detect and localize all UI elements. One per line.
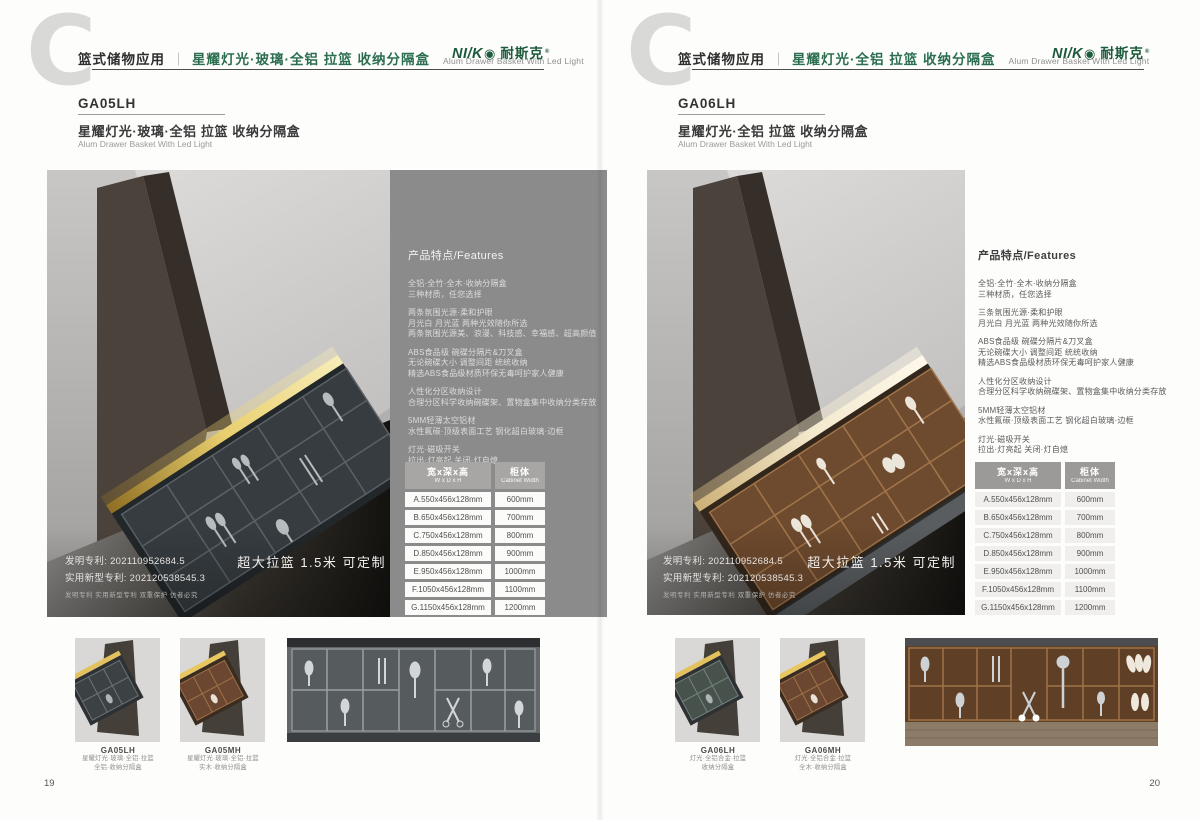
- spec-cabinet: 800mm: [1065, 528, 1115, 543]
- thumb-line1: 灯光·全铝合金·拉篮: [768, 755, 878, 764]
- feature-line: 人性化分区收纳设计: [408, 387, 600, 398]
- thumbnail-caption-1: GA05LH 星耀灯光·玻璃·全铝·拉篮 全铝·收纳分隔盒: [63, 746, 173, 772]
- feature-line: 5MM轻薄太空铝材: [408, 416, 600, 427]
- spec-cabinet: 1100mm: [1065, 582, 1115, 597]
- spread-spine: [596, 0, 604, 820]
- spec-cabinet: 600mm: [495, 492, 545, 507]
- features-heading: 产品特点/Features: [408, 247, 600, 263]
- patent-line-3: 发明专利 实用新型专利 双重保护 仿者必究: [663, 589, 803, 599]
- brand-logo-cn: 耐斯克: [1100, 42, 1144, 62]
- header-separator: ｜: [772, 49, 785, 68]
- thumbnail-photo-2: [780, 638, 865, 742]
- spec-col-size-en: W x D x H: [405, 477, 491, 485]
- spec-cabinet: 700mm: [495, 510, 545, 525]
- feature-line: 灯光·磁吸开关: [978, 435, 1173, 446]
- brand-logo-latin: NI/K: [452, 46, 483, 62]
- spec-col-cabinet: 柜体 Cabinet Width: [495, 462, 545, 489]
- spec-cabinet: 1200mm: [495, 600, 545, 615]
- spec-table: 宽x深x高 W x D x H 柜体 Cabinet Width A.550x4…: [405, 462, 545, 615]
- features-heading: 产品特点/Features: [978, 247, 1173, 263]
- feature-group: 两条氛围光源·柔和护眼 月光白 月光蓝 两种光效随你所选 两条氛围光源美、浪漫、…: [408, 308, 600, 340]
- patent-line-2: 实用新型专利: 202120538545.3: [663, 570, 803, 587]
- brand-logo: NI/K◉耐斯克®: [1052, 42, 1149, 62]
- spec-col-cabinet-en: Cabinet Width: [495, 477, 545, 485]
- feature-line: 两条氛围光源美、浪漫、科技感、幸福感、超高颜值: [408, 329, 600, 340]
- spec-size: B.650x456x128mm: [405, 510, 491, 525]
- spec-size: B.650x456x128mm: [975, 510, 1061, 525]
- brand-logo: NI/K◉耐斯克®: [452, 42, 549, 62]
- feature-group: 灯光·磁吸开关 拉出·灯亮起 关闭·灯自熄: [978, 435, 1173, 456]
- product-name-en: Alum Drawer Basket With Led Light: [678, 139, 812, 149]
- registered-mark: ®: [545, 49, 549, 55]
- feature-line: 三种材质，任您选择: [978, 290, 1173, 301]
- thumb-line1: 星耀灯光·玻璃·全铝·拉篮: [63, 755, 173, 764]
- product-code-underline: [78, 114, 225, 115]
- spec-col-cabinet: 柜体 Cabinet Width: [1065, 462, 1115, 489]
- spec-row: D.850x456x128mm900mm: [975, 546, 1115, 561]
- feature-line: ABS食品级 碗碟分隔片&刀叉盒: [978, 337, 1173, 348]
- spec-cabinet: 1200mm: [1065, 600, 1115, 615]
- product-code: GA05LH: [78, 96, 136, 111]
- left-page: C 篮式储物应用 ｜ 星耀灯光·玻璃·全铝 拉篮 收纳分隔盒 Alum Draw…: [0, 0, 600, 820]
- spec-size: F.1050x456x128mm: [405, 582, 491, 597]
- spec-row: E.950x456x128mm1000mm: [975, 564, 1115, 579]
- main-product-photo: [47, 170, 390, 617]
- thumb-code: GA06LH: [663, 746, 773, 755]
- spec-size: C.750x456x128mm: [975, 528, 1061, 543]
- feature-line: 月光白 月光蓝 两种光效随你所选: [978, 319, 1173, 330]
- spec-size: C.750x456x128mm: [405, 528, 491, 543]
- feature-line: 三种材质，任您选择: [408, 290, 600, 301]
- spec-row: D.850x456x128mm900mm: [405, 546, 545, 561]
- header-separator: ｜: [172, 49, 185, 68]
- product-code: GA06LH: [678, 96, 736, 111]
- thumbnail-photo-wide: [287, 638, 540, 742]
- spec-size: A.550x456x128mm: [405, 492, 491, 507]
- spec-cabinet: 900mm: [495, 546, 545, 561]
- mini-cabinet-illustration: [75, 638, 160, 742]
- thumbnail-photo-1: [75, 638, 160, 742]
- mini-cabinet-illustration: [180, 638, 265, 742]
- spec-size: G.1150x456x128mm: [975, 600, 1061, 615]
- feature-group: 全铝·全竹·全木·收纳分隔盒 三种材质，任您选择: [978, 279, 1173, 300]
- thumb-line2: 全木·收纳分隔盒: [768, 764, 878, 773]
- spec-row: F.1050x456x128mm1100mm: [975, 582, 1115, 597]
- spec-col-size: 宽x深x高 W x D x H: [405, 462, 491, 489]
- feature-line: 无论碗碟大小 调整间距 统统收纳: [408, 358, 600, 369]
- thumb-line1: 灯光·全铝合金·拉篮: [663, 755, 773, 764]
- product-code-underline: [678, 114, 825, 115]
- spec-col-size-cn: 宽x深x高: [975, 467, 1061, 477]
- feature-group: ABS食品级 碗碟分隔片&刀叉盒 无论碗碟大小 调整间距 统统收纳 精选ABS食…: [408, 348, 600, 380]
- spec-table: 宽x深x高 W x D x H 柜体 Cabinet Width A.550x4…: [975, 462, 1115, 615]
- thumbnail-caption-2: GA05MH 星耀灯光·玻璃·全铝·拉篮 实木·收纳分隔盒: [168, 746, 278, 772]
- header-title-cn: 星耀灯光·玻璃·全铝 拉篮 收纳分隔盒: [192, 48, 430, 68]
- main-product-photo: [647, 170, 965, 615]
- spec-cabinet: 600mm: [1065, 492, 1115, 507]
- registered-mark: ®: [1145, 49, 1149, 55]
- thumb-line2: 全铝·收纳分隔盒: [63, 764, 173, 773]
- feature-group: 人性化分区收纳设计 合理分区科学收纳碗碟架、置物盒集中收纳分类存放: [978, 377, 1173, 398]
- thumbnail-photo-2: [180, 638, 265, 742]
- spec-row: F.1050x456x128mm1100mm: [405, 582, 545, 597]
- organizer-topview-illustration: [905, 638, 1158, 746]
- header-category: 篮式储物应用: [78, 48, 165, 68]
- header-rule: [92, 69, 544, 70]
- feature-group: 三条氛围光源·柔和护眼 月光白 月光蓝 两种光效随你所选: [978, 308, 1173, 329]
- feature-line: 合理分区科学收纳碗碟架、置物盒集中收纳分类存放: [408, 398, 600, 409]
- feature-line: 精选ABS食品级材质环保无毒呵护家人健康: [978, 358, 1173, 369]
- feature-group: 5MM轻薄太空铝材 水性氟碳·顶级表面工艺 钢化超白玻璃·边框: [408, 416, 600, 437]
- spec-row: A.550x456x128mm600mm: [975, 492, 1115, 507]
- product-name-cn: 星耀灯光·全铝 拉篮 收纳分隔盒: [678, 121, 868, 140]
- feature-group: 5MM轻薄太空铝材 水性氟碳·顶级表面工艺 钢化超白玻璃·边框: [978, 406, 1173, 427]
- thumbnail-photo-1: [675, 638, 760, 742]
- thumb-line1: 星耀灯光·玻璃·全铝·拉篮: [168, 755, 278, 764]
- feature-line: 水性氟碳·顶级表面工艺 钢化超白玻璃·边框: [978, 416, 1173, 427]
- thumb-code: GA05LH: [63, 746, 173, 755]
- page-number: 20: [1130, 778, 1160, 789]
- feature-group: ABS食品级 碗碟分隔片&刀叉盒 无论碗碟大小 调整间距 统统收纳 精选ABS食…: [978, 337, 1173, 369]
- spec-row: E.950x456x128mm1000mm: [405, 564, 545, 579]
- feature-line: 两条氛围光源·柔和护眼: [408, 308, 600, 319]
- feature-line: 拉出·灯亮起 关闭·灯自熄: [978, 445, 1173, 456]
- spec-size: D.850x456x128mm: [405, 546, 491, 561]
- feature-line: 无论碗碟大小 调整间距 统统收纳: [978, 348, 1173, 359]
- spec-row: B.650x456x128mm700mm: [975, 510, 1115, 525]
- organizer-topview-illustration: [287, 638, 540, 742]
- thumbnail-caption-1: GA06LH 灯光·全铝合金·拉篮 收纳分隔盒: [663, 746, 773, 772]
- patent-line-1: 发明专利: 202110952684.5: [65, 553, 205, 570]
- feature-line: ABS食品级 碗碟分隔片&刀叉盒: [408, 348, 600, 359]
- spec-table-header: 宽x深x高 W x D x H 柜体 Cabinet Width: [975, 462, 1115, 489]
- feature-line: 灯光·磁吸开关: [408, 445, 600, 456]
- mini-cabinet-illustration: [675, 638, 760, 742]
- page-number: 19: [44, 778, 55, 789]
- spec-col-cabinet-cn: 柜体: [495, 467, 545, 477]
- spec-cabinet: 800mm: [495, 528, 545, 543]
- patent-block: 发明专利: 202110952684.5 实用新型专利: 20212053854…: [65, 553, 205, 599]
- product-name-en: Alum Drawer Basket With Led Light: [78, 139, 212, 149]
- spec-row: C.750x456x128mm800mm: [405, 528, 545, 543]
- feature-line: 水性氟碳·顶级表面工艺 钢化超白玻璃·边框: [408, 427, 600, 438]
- spec-row: G.1150x456x128mm1200mm: [405, 600, 545, 615]
- spec-col-size-cn: 宽x深x高: [405, 467, 491, 477]
- header-title-cn: 星耀灯光·全铝 拉篮 收纳分隔盒: [792, 48, 996, 68]
- spec-cabinet: 1000mm: [1065, 564, 1115, 579]
- mini-cabinet-illustration: [780, 638, 865, 742]
- thumbnail-caption-2: GA06MH 灯光·全铝合金·拉篮 全木·收纳分隔盒: [768, 746, 878, 772]
- spec-cabinet: 1100mm: [495, 582, 545, 597]
- spec-col-cabinet-cn: 柜体: [1065, 467, 1115, 477]
- thumb-code: GA06MH: [768, 746, 878, 755]
- brand-logo-latin: NI/K: [1052, 46, 1083, 62]
- spec-size: F.1050x456x128mm: [975, 582, 1061, 597]
- spec-row: B.650x456x128mm700mm: [405, 510, 545, 525]
- spec-col-size-en: W x D x H: [975, 477, 1061, 485]
- brand-logo-o-icon: ◉: [1084, 46, 1095, 62]
- feature-line: 5MM轻薄太空铝材: [978, 406, 1173, 417]
- spec-cabinet: 900mm: [1065, 546, 1115, 561]
- header-rule: [692, 69, 1144, 70]
- brand-logo-cn: 耐斯克: [500, 42, 544, 62]
- feature-group: 人性化分区收纳设计 合理分区科学收纳碗碟架、置物盒集中收纳分类存放: [408, 387, 600, 408]
- right-page: C 篮式储物应用 ｜ 星耀灯光·全铝 拉篮 收纳分隔盒 Alum Drawer …: [600, 0, 1200, 820]
- spec-size: D.850x456x128mm: [975, 546, 1061, 561]
- spec-size: E.950x456x128mm: [975, 564, 1061, 579]
- oversize-banner: 超大拉篮 1.5米 可定制: [770, 552, 956, 571]
- spec-col-cabinet-en: Cabinet Width: [1065, 477, 1115, 485]
- feature-group: 全铝·全竹·全木·收纳分隔盒 三种材质，任您选择: [408, 279, 600, 300]
- oversize-banner: 超大拉篮 1.5米 可定制: [200, 552, 386, 571]
- spec-row: G.1150x456x128mm1200mm: [975, 600, 1115, 615]
- features-block: 产品特点/Features 全铝·全竹·全木·收纳分隔盒 三种材质，任您选择 三…: [978, 247, 1173, 464]
- spec-cabinet: 1000mm: [495, 564, 545, 579]
- spec-col-size: 宽x深x高 W x D x H: [975, 462, 1061, 489]
- features-block: 产品特点/Features 全铝·全竹·全木·收纳分隔盒 三种材质，任您选择 两…: [408, 247, 600, 474]
- spec-row: A.550x456x128mm600mm: [405, 492, 545, 507]
- spec-cabinet: 700mm: [1065, 510, 1115, 525]
- thumbnail-photo-wide: [905, 638, 1158, 746]
- header-category: 篮式储物应用: [678, 48, 765, 68]
- spec-size: A.550x456x128mm: [975, 492, 1061, 507]
- feature-line: 人性化分区收纳设计: [978, 377, 1173, 388]
- thumb-code: GA05MH: [168, 746, 278, 755]
- feature-line: 月光白 月光蓝 两种光效随你所选: [408, 319, 600, 330]
- spec-size: G.1150x456x128mm: [405, 600, 491, 615]
- thumb-line2: 收纳分隔盒: [663, 764, 773, 773]
- feature-line: 合理分区科学收纳碗碟架、置物盒集中收纳分类存放: [978, 387, 1173, 398]
- feature-line: 精选ABS食品级材质环保无毒呵护家人健康: [408, 369, 600, 380]
- spec-size: E.950x456x128mm: [405, 564, 491, 579]
- spec-table-header: 宽x深x高 W x D x H 柜体 Cabinet Width: [405, 462, 545, 489]
- feature-line: 全铝·全竹·全木·收纳分隔盒: [978, 279, 1173, 290]
- brand-logo-o-icon: ◉: [484, 46, 495, 62]
- spec-row: C.750x456x128mm800mm: [975, 528, 1115, 543]
- patent-line-3: 发明专利 实用新型专利 双重保护 仿者必究: [65, 589, 205, 599]
- feature-line: 全铝·全竹·全木·收纳分隔盒: [408, 279, 600, 290]
- patent-line-2: 实用新型专利: 202120538545.3: [65, 570, 205, 587]
- feature-line: 三条氛围光源·柔和护眼: [978, 308, 1173, 319]
- thumb-line2: 实木·收纳分隔盒: [168, 764, 278, 773]
- product-name-cn: 星耀灯光·玻璃·全铝 拉篮 收纳分隔盒: [78, 121, 300, 140]
